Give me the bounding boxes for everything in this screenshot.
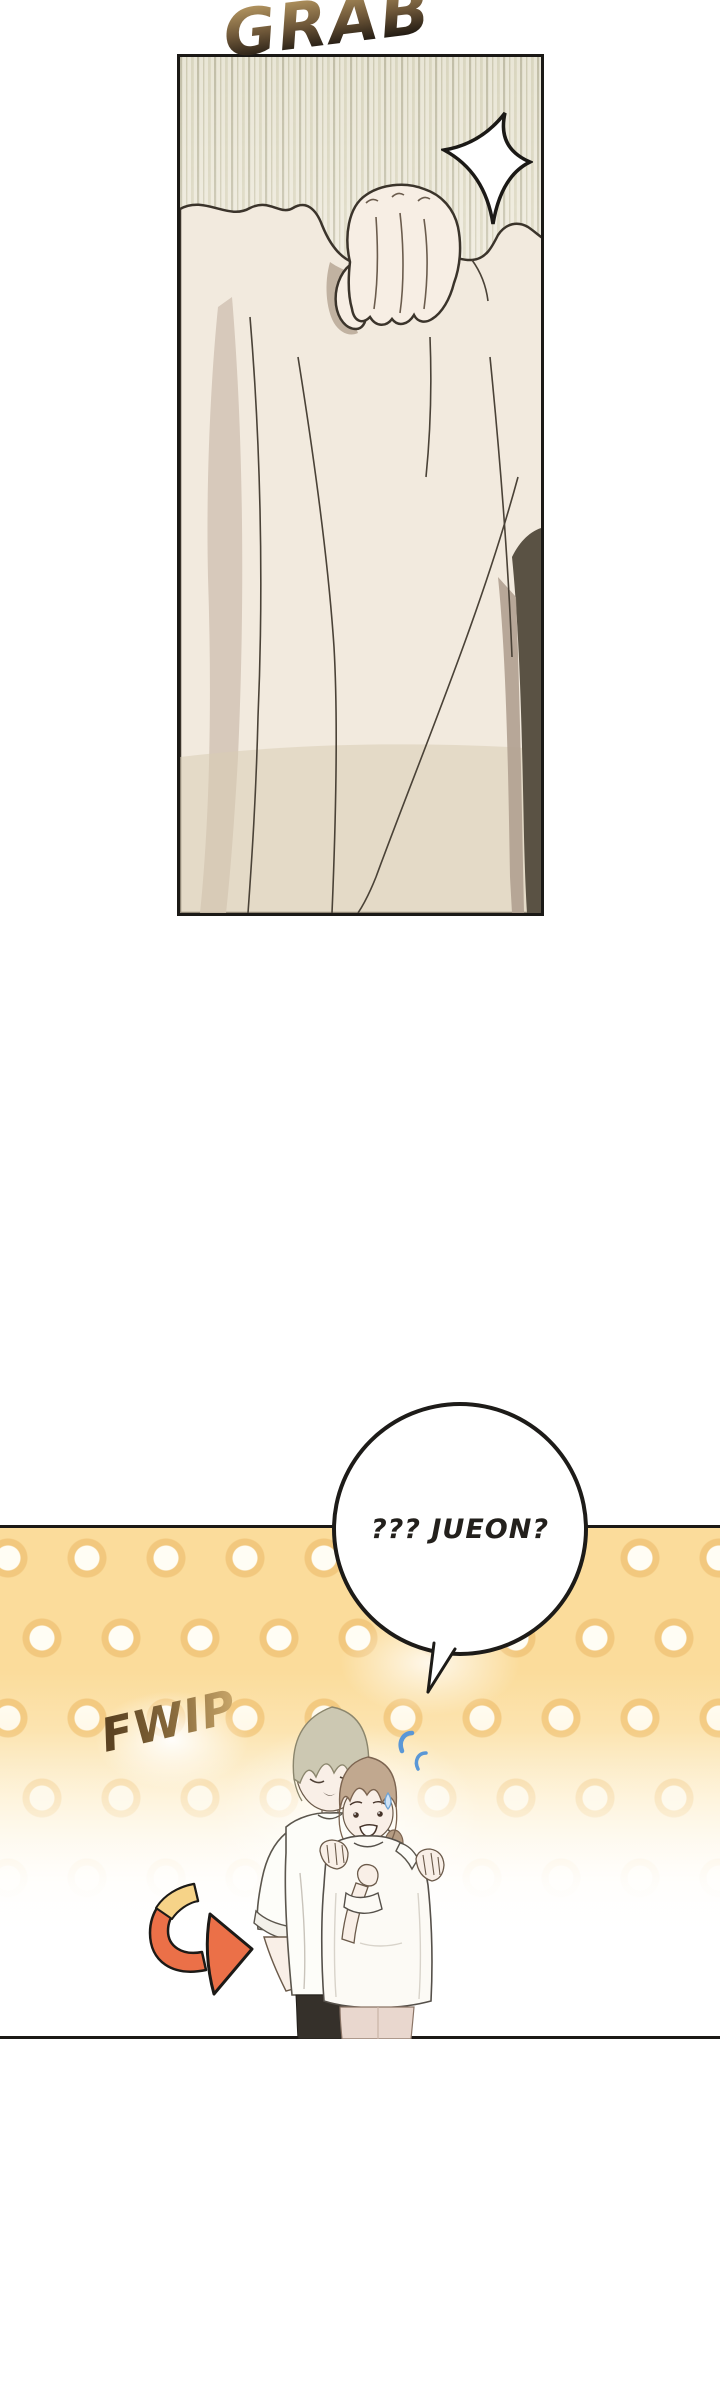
characters-artwork	[240, 1693, 520, 2039]
impact-star-icon	[441, 110, 533, 228]
sweat-drop-icon	[385, 1793, 391, 1809]
speech-bubble: ??? JUEON?	[332, 1402, 588, 1656]
speech-bubble-tail	[418, 1640, 462, 1696]
speech-bubble-text: ??? JUEON?	[371, 1514, 549, 1545]
webtoon-page: GRAB FWIP	[0, 0, 720, 2400]
confusion-marks-icon	[401, 1733, 426, 1769]
